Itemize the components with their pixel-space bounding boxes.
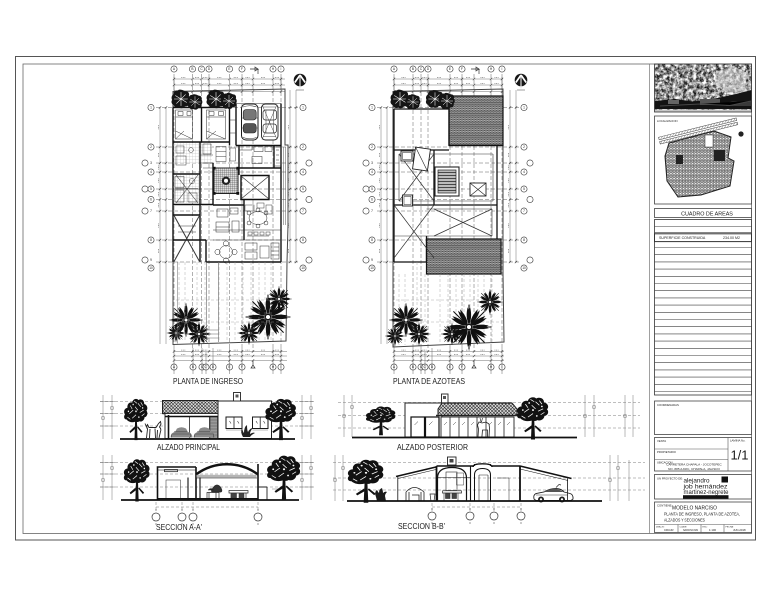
svg-text:1: 1: [302, 106, 304, 110]
svg-text:I: I: [502, 365, 503, 369]
svg-text:CUADRO DE AREAS: CUADRO DE AREAS: [681, 211, 733, 217]
svg-text:4: 4: [302, 170, 304, 174]
svg-text:SECCION A-A': SECCION A-A': [156, 522, 202, 532]
svg-text:8: 8: [523, 238, 525, 242]
svg-text:5: 5: [150, 187, 152, 191]
svg-text:MODELO NARCISO: MODELO NARCISO: [672, 506, 717, 512]
svg-text:PROPIETARIO: PROPIETARIO: [657, 450, 677, 454]
svg-text:2: 2: [523, 145, 525, 149]
svg-text:1: 1: [523, 106, 525, 110]
svg-text:E: E: [228, 67, 230, 71]
svg-text:6: 6: [371, 198, 373, 202]
svg-text:UN PROYECTO DE:: UN PROYECTO DE:: [657, 477, 683, 481]
svg-text:5: 5: [523, 187, 525, 191]
svg-text:10: 10: [301, 266, 305, 270]
svg-text:ESC:: ESC:: [703, 527, 708, 529]
svg-text:C': C': [424, 365, 427, 369]
svg-text:COORDENADAS: COORDENADAS: [657, 403, 679, 407]
svg-text:B: B: [412, 67, 414, 71]
svg-text:ALZADO PRINCIPAL: ALZADO PRINCIPAL: [157, 442, 220, 452]
svg-text:8: 8: [371, 238, 373, 242]
svg-text:10: 10: [370, 266, 374, 270]
svg-text:NARCISO-MN: NARCISO-MN: [683, 528, 698, 532]
svg-text:9: 9: [150, 258, 152, 262]
svg-text:4: 4: [523, 170, 525, 174]
svg-text:2: 2: [371, 145, 373, 149]
svg-text:I: I: [281, 365, 282, 369]
svg-text:PLANTA DE INGRESO, PLANTA DE A: PLANTA DE INGRESO, PLANTA DE AZOTEA,: [664, 512, 740, 517]
svg-text:1/1: 1/1: [730, 448, 748, 463]
svg-text:8: 8: [150, 238, 152, 242]
svg-text:10: 10: [149, 266, 153, 270]
svg-text:E: E: [449, 67, 451, 71]
svg-text:234.00 M2: 234.00 M2: [723, 236, 740, 240]
svg-text:PLANTA DE INGRESO: PLANTA DE INGRESO: [173, 376, 243, 386]
svg-text:VENTA: VENTA: [657, 439, 666, 443]
svg-text:7: 7: [150, 209, 152, 213]
svg-text:CRUJR: CRUJR: [664, 528, 673, 532]
svg-text:B: B: [192, 365, 194, 369]
svg-text:5: 5: [371, 187, 373, 191]
svg-text:LAMINA No.: LAMINA No.: [730, 439, 746, 443]
svg-text:F: F: [461, 67, 463, 71]
svg-text:10: 10: [522, 266, 526, 270]
svg-text:SECCION B-B': SECCION B-B': [398, 521, 445, 531]
svg-text:B: B: [412, 365, 414, 369]
svg-text:ALZADO POSTERIOR: ALZADO POSTERIOR: [397, 442, 468, 452]
svg-text:9: 9: [371, 258, 373, 262]
svg-text:E: E: [449, 365, 451, 369]
svg-text:5: 5: [302, 187, 304, 191]
svg-text:4: 4: [150, 170, 152, 174]
svg-text:6: 6: [150, 198, 152, 202]
svg-text:B: B: [191, 67, 193, 71]
svg-text:SUPERFICIE CONSTRUIDA: SUPERFICIE CONSTRUIDA: [659, 236, 706, 240]
svg-text:8: 8: [302, 238, 304, 242]
svg-text:CONTIENE:: CONTIENE:: [657, 504, 672, 508]
svg-text:7: 7: [371, 209, 373, 213]
svg-text:3: 3: [371, 161, 373, 165]
svg-text:2: 2: [150, 145, 152, 149]
svg-text:1: 1: [371, 106, 373, 110]
svg-text:7: 7: [523, 209, 525, 213]
svg-text:F: F: [461, 365, 463, 369]
svg-text:JUN-2018: JUN-2018: [733, 528, 746, 532]
svg-text:I: I: [281, 67, 282, 71]
svg-text:3: 3: [150, 161, 152, 165]
svg-text:C': C': [205, 365, 208, 369]
svg-text:7: 7: [302, 209, 304, 213]
svg-text:2: 2: [302, 145, 304, 149]
svg-text:1:100: 1:100: [709, 528, 716, 532]
svg-text:F: F: [241, 365, 243, 369]
svg-text:ALZADOS Y SECCIONES: ALZADOS Y SECCIONES: [664, 517, 705, 522]
svg-text:LOCALIZACION: LOCALIZACION: [657, 119, 678, 123]
svg-text:F: F: [241, 67, 243, 71]
svg-text:martinez-negrete: martinez-negrete: [684, 489, 729, 496]
svg-text:4: 4: [371, 170, 373, 174]
svg-text:1: 1: [150, 106, 152, 110]
svg-text:I: I: [502, 67, 503, 71]
svg-text:PLANTA DE AZOTEAS: PLANTA DE AZOTEAS: [393, 376, 465, 386]
svg-text:NO. 885 AJIJIC, CHAPALA, JALIS: NO. 885 AJIJIC, CHAPALA, JALISCO: [668, 467, 720, 471]
svg-text:E: E: [228, 365, 230, 369]
